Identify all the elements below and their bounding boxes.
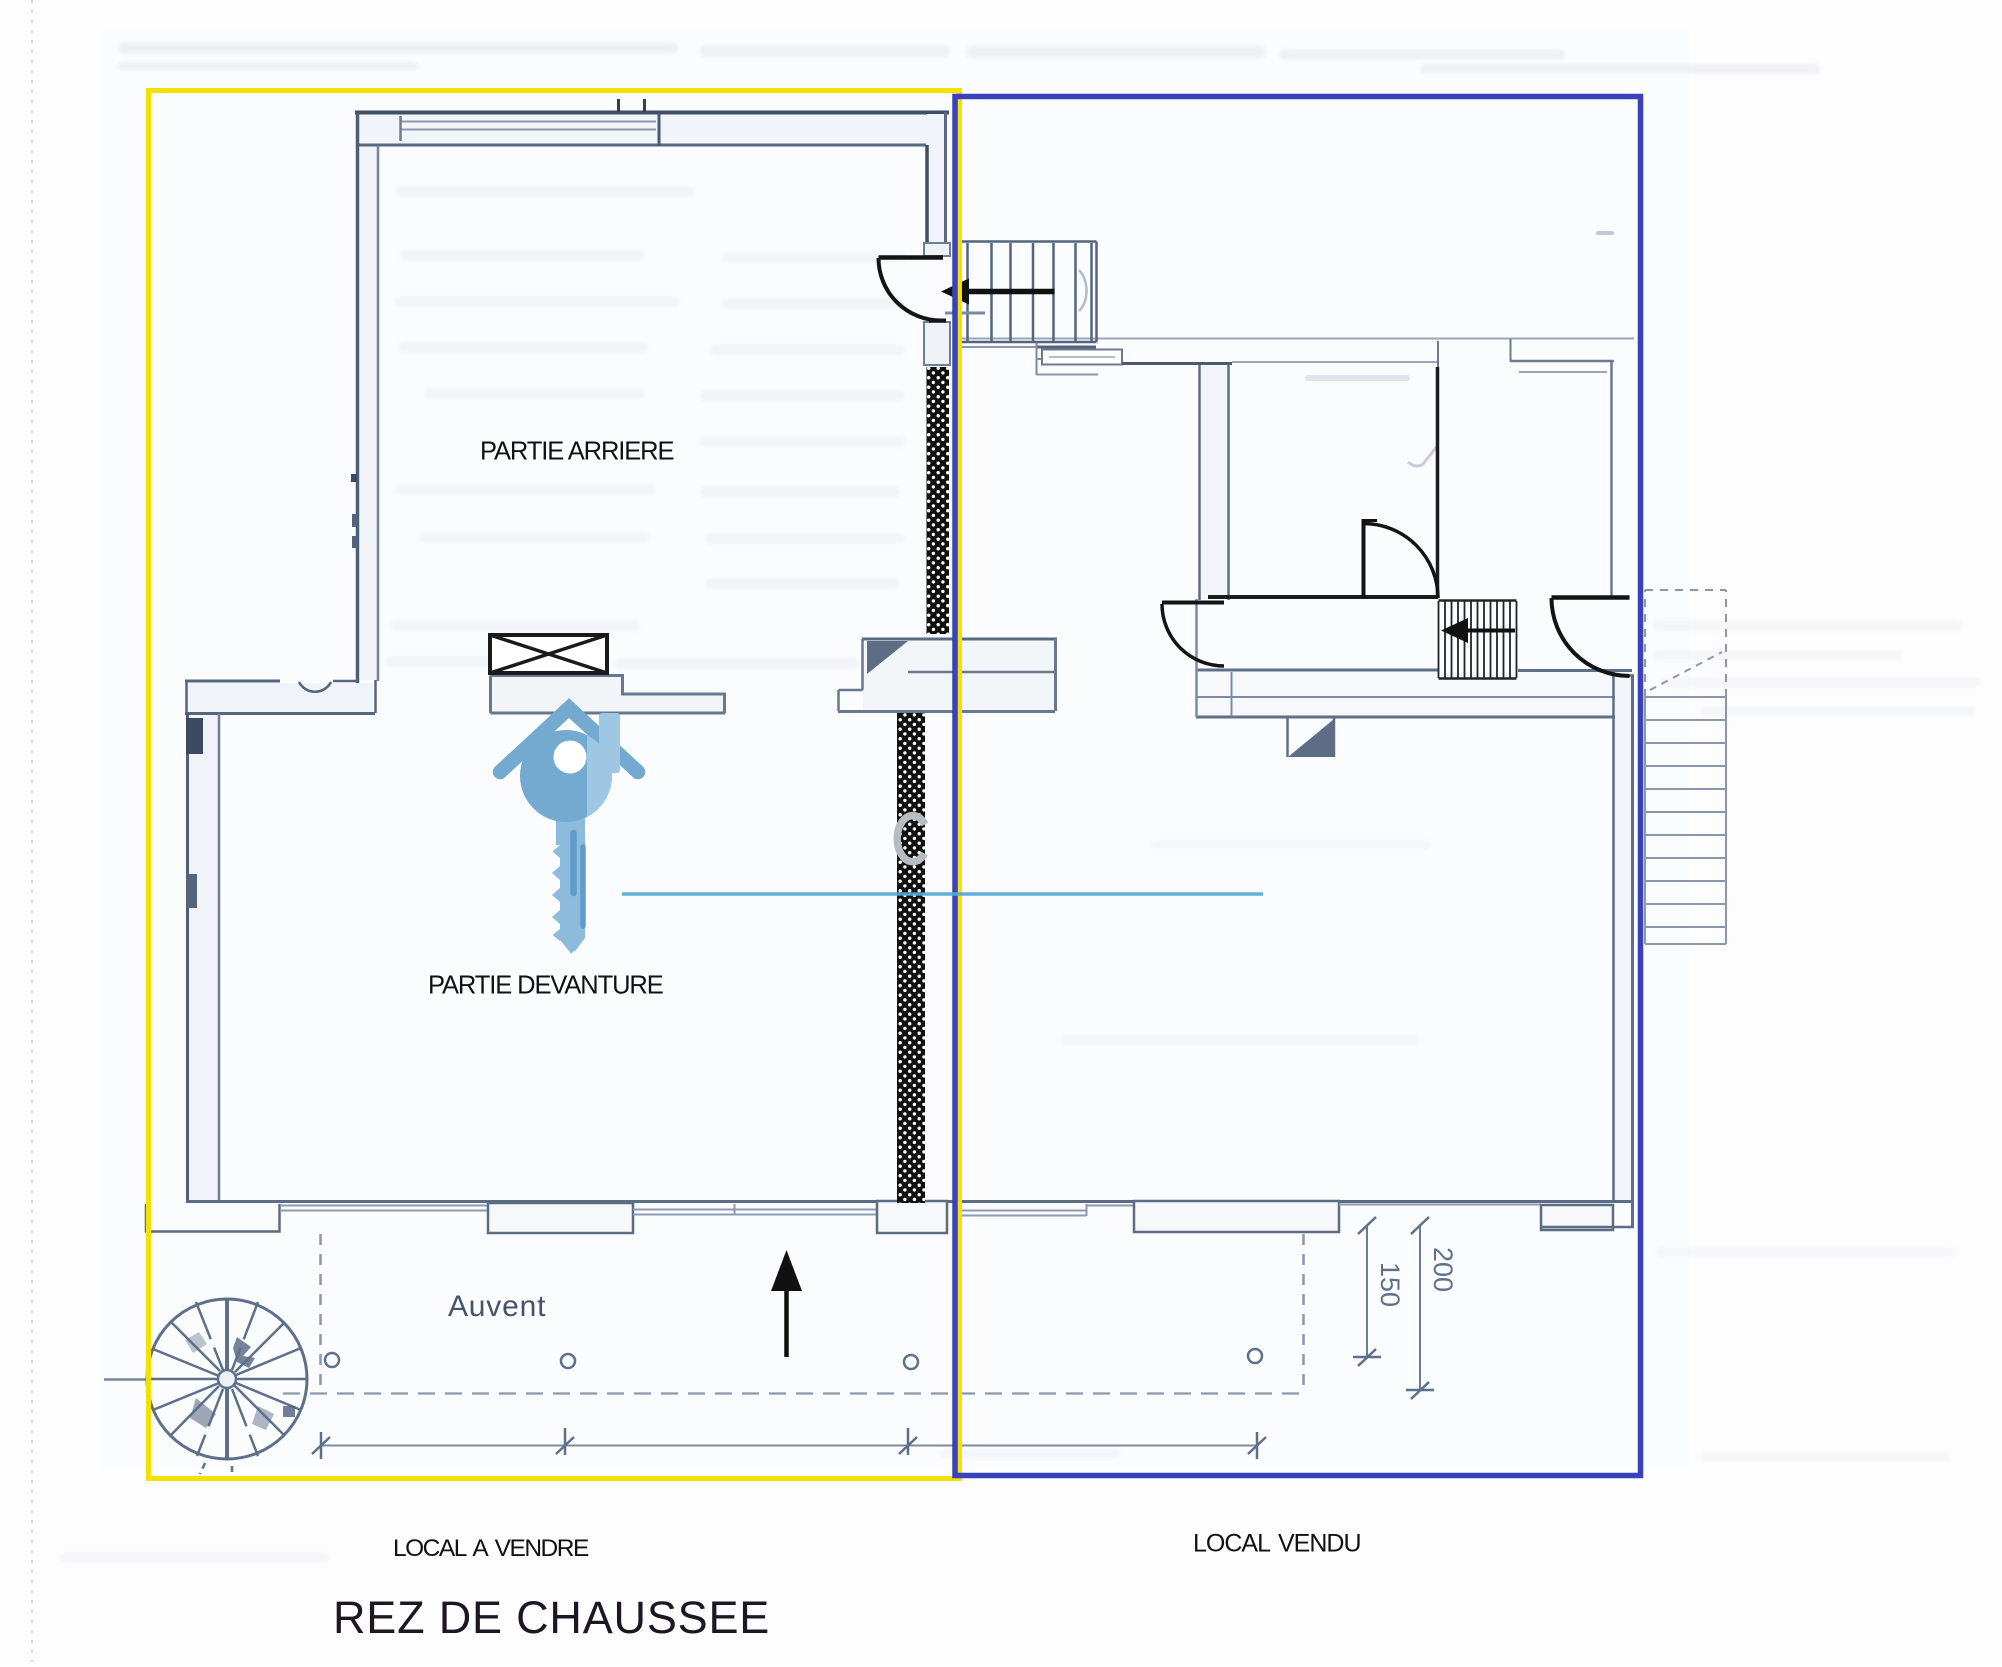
svg-text:REZ DE CHAUSSEE: REZ DE CHAUSSEE <box>333 1592 770 1643</box>
svg-text:PARTIE DEVANTURE: PARTIE DEVANTURE <box>428 972 663 1000</box>
svg-text:LOCAL VENDU: LOCAL VENDU <box>1193 1530 1361 1558</box>
svg-text:150: 150 <box>1375 1262 1405 1307</box>
svg-text:LOCAL A VENDRE: LOCAL A VENDRE <box>393 1535 589 1562</box>
svg-text:PARTIE ARRIERE: PARTIE ARRIERE <box>480 438 673 466</box>
svg-text:200: 200 <box>1428 1247 1458 1292</box>
svg-text:Auvent: Auvent <box>448 1290 546 1323</box>
